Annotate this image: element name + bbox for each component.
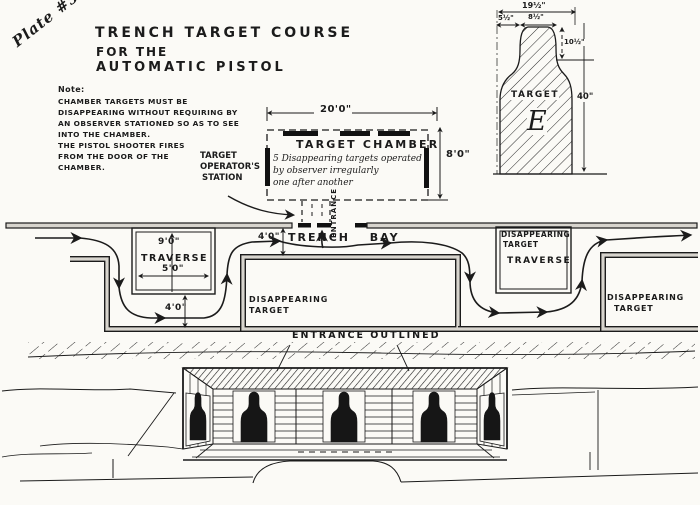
operator-station-line1: TARGET	[200, 152, 237, 161]
chamber-desc-line3: one after another	[273, 179, 353, 188]
entrance-outlined-label: ENTRANCE OUTLINED	[292, 331, 441, 341]
left-traverse-width-dimension: 5'0"	[162, 265, 184, 274]
disappearing-target-right-line2: TARGET	[614, 305, 653, 313]
chamber-desc-line2: by observer irregularly	[273, 167, 379, 176]
note-heading: Note:	[58, 86, 85, 94]
disappearing-target-left-line1: DISAPPEARING	[249, 296, 328, 304]
target-e-head-width-dimension: 8½"	[528, 14, 544, 21]
flow-arrows	[35, 232, 690, 318]
left-traverse-depth-dimension: 9'0"	[158, 238, 180, 247]
left-channel-dimension: 4'0"	[165, 304, 187, 313]
right-traverse-target-line2: TARGET	[503, 241, 539, 249]
trench-bay-label: TRENCH BAY	[288, 232, 400, 243]
drawing-title-line2: FOR THE	[96, 46, 168, 58]
target-e-head-height-dimension: 10½"	[564, 39, 585, 46]
operator-station-line3: STATION	[202, 174, 242, 183]
line-art	[0, 0, 700, 505]
target-e-offset-dimension: 5½"	[498, 15, 514, 22]
chamber-desc-line1: 5 Disappearing targets operated	[273, 155, 422, 164]
trench-target-course-drawing: Plate #5 TRENCH TARGET COURSE FOR THE AU…	[0, 0, 700, 505]
target-e-height-dimension: 40"	[577, 93, 593, 102]
drawing-title-line3: AUTOMATIC PISTOL	[96, 61, 286, 74]
disappearing-target-right-line1: DISAPPEARING	[607, 294, 684, 302]
right-traverse-target-line1: DISAPPEARING	[501, 231, 570, 239]
disappearing-target-left-line2: TARGET	[249, 307, 290, 315]
note-line-1: CHAMBER TARGETS MUST BE	[58, 98, 188, 105]
note-line-5: THE PISTOL SHOOTER FIRES	[58, 142, 185, 149]
right-traverse-label: TRAVERSE	[507, 257, 571, 266]
chamber-height-dimension: 8'0"	[446, 150, 470, 160]
operator-station-line2: OPERATOR'S	[200, 163, 260, 172]
note-line-3: AN OBSERVER STATIONED SO AS TO SEE	[58, 120, 239, 127]
target-e-label: TARGET	[511, 91, 559, 100]
drawing-title-line1: TRENCH TARGET COURSE	[95, 26, 353, 40]
chamber-width-dimension: 20'0"	[320, 105, 352, 115]
bay-width-dimension: 4'0"	[258, 233, 280, 242]
note-line-2: DISAPPEARING WITHOUT REQUIRING BY	[58, 109, 238, 116]
note-line-6: FROM THE DOOR OF THE	[58, 153, 169, 160]
chamber-title: TARGET CHAMBER	[296, 139, 439, 150]
perspective-view	[2, 342, 698, 483]
note-line-4: INTO THE CHAMBER.	[58, 131, 150, 138]
target-e-letter: E	[527, 108, 547, 135]
left-traverse-label: TRAVERSE	[141, 254, 208, 264]
target-e-width-dimension: 19½"	[522, 2, 546, 10]
note-line-7: CHAMBER.	[58, 164, 105, 171]
